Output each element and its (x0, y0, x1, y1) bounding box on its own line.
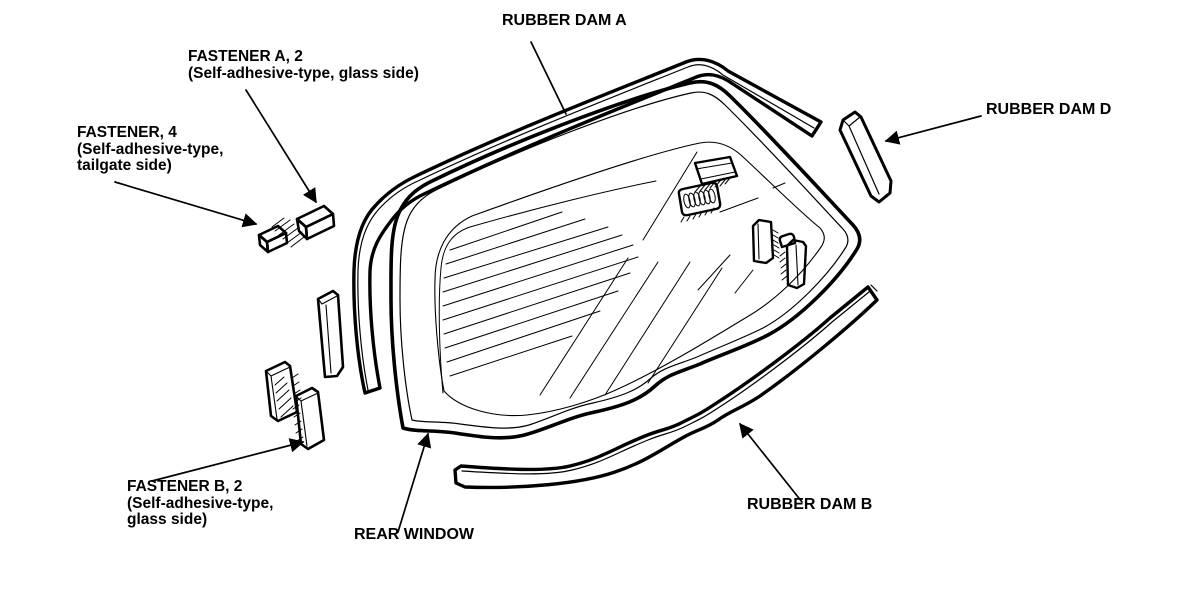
rear-window-label: REAR WINDOW (354, 527, 474, 544)
fastener-b-leader-line (152, 442, 303, 481)
fastener-tailgate-label-line2: (Self-adhesive-type, (77, 142, 223, 159)
glass-block-flag (780, 234, 806, 288)
glass-outline (391, 82, 860, 438)
rubber-dam-a-leader-line (531, 42, 566, 114)
glass-block-tall (753, 220, 779, 263)
rear-window-leader-line (398, 434, 428, 532)
fastener-b-block-left (266, 362, 301, 421)
fastener-a-label-line1: FASTENER A, 2 (188, 49, 419, 66)
fastener-b-label: FASTENER B, 2 (Self-adhesive-type, glass… (127, 479, 273, 529)
glass-reflection-lines (540, 152, 785, 398)
rubber-dam-a-label: RUBBER DAM A (502, 13, 627, 30)
glass-inner-edge (400, 92, 848, 428)
glass-block-coil (679, 183, 720, 222)
fastener-tailgate-label-line3: tailgate side) (77, 158, 223, 175)
fastener-a-leader-line (246, 90, 316, 202)
defroster-lines (443, 212, 638, 376)
rubber-dam-d-label: RUBBER DAM D (986, 102, 1111, 119)
fastener-b-pair (266, 362, 324, 449)
rubber-dam-b-leader-line (740, 424, 802, 502)
fastener-tailgate-label-line1: FASTENER, 4 (77, 125, 223, 142)
rear-window-glass (391, 82, 860, 438)
fastener-b-label-line2: (Self-adhesive-type, (127, 496, 273, 513)
defroster-area-line (439, 181, 656, 393)
glass-fastener-blocks (679, 157, 806, 288)
fastener-b-block-right (293, 388, 324, 449)
fastener-b-label-line1: FASTENER B, 2 (127, 479, 273, 496)
rubber-dam-b-label: RUBBER DAM B (747, 497, 872, 514)
fastener-a-pair (259, 206, 334, 252)
fastener-strip-small (318, 291, 343, 377)
fastener-b-label-line3: glass side) (127, 512, 273, 529)
fastener-a-block (297, 206, 334, 239)
rubber-dam-b-strip (455, 285, 877, 487)
rubber-dam-d-leader-line (886, 116, 981, 141)
fastener-tailgate-label: FASTENER, 4 (Self-adhesive-type, tailgat… (77, 125, 223, 175)
rubber-dam-d-strip (840, 112, 891, 202)
fastener-a-label: FASTENER A, 2 (Self-adhesive-type, glass… (188, 49, 419, 82)
figure-canvas: RUBBER DAM A FASTENER A, 2 (Self-adhesiv… (0, 0, 1184, 590)
fastener-tailgate-leader-line (115, 182, 256, 224)
fastener-a-label-line2: (Self-adhesive-type, glass side) (188, 66, 419, 83)
